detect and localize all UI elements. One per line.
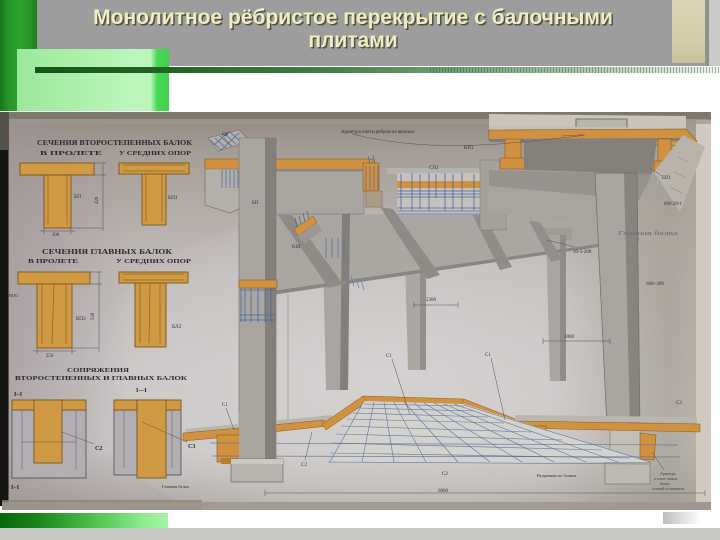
svg-text:С3: С3 [676, 401, 682, 406]
svg-text:200: 200 [52, 233, 60, 238]
svg-text:У СРЕДНИХ ОПОР: У СРЕДНИХ ОПОР [119, 150, 191, 157]
svg-text:СЕЧЕНИЯ ГЛАВНЫХ БАЛОК: СЕЧЕНИЯ ГЛАВНЫХ БАЛОК [42, 249, 172, 256]
svg-text:ВТОРОСТЕПЕННЫХ И ГЛАВНЫХ БАЛОК: ВТОРОСТЕПЕННЫХ И ГЛАВНЫХ БАЛОК [15, 375, 187, 382]
svg-text:БП1: БП1 [168, 195, 178, 201]
svg-text:СП2: СП2 [429, 166, 439, 171]
svg-text:СЕЧЕНИЯ ВТОРОСТЕПЕННЫХ БАЛОК: СЕЧЕНИЯ ВТОРОСТЕПЕННЫХ БАЛОК [37, 140, 192, 147]
svg-text:250: 250 [46, 354, 54, 359]
svg-text:С1: С1 [222, 403, 228, 408]
svg-text:520: 520 [91, 312, 96, 320]
svg-text:С1: С1 [386, 354, 392, 359]
svg-text:Вторичные по балкам: Вторичные по балкам [537, 473, 576, 478]
svg-text:I⌐I: I⌐I [14, 392, 23, 398]
svg-text:В ПРОЛЕТЕ: В ПРОЛЕТЕ [28, 258, 79, 265]
svg-text:600+400: 600+400 [646, 282, 664, 287]
svg-text:балок: балок [660, 482, 669, 486]
svg-text:БП2: БП2 [76, 316, 86, 322]
svg-text:I—I: I—I [136, 388, 147, 394]
svg-text:С2: С2 [442, 472, 448, 477]
svg-text:С2: С2 [95, 446, 102, 452]
svg-text:КР: КР [222, 133, 228, 138]
svg-text:В ПРОЛЕТЕ: В ПРОЛЕТЕ [40, 150, 103, 157]
svg-text:3000: 3000 [564, 335, 575, 340]
svg-text:БП: БП [74, 194, 81, 200]
svg-text:БП1: БП1 [662, 176, 671, 181]
svg-text:Главная балка: Главная балка [618, 230, 679, 237]
svg-text:КП1: КП1 [464, 146, 474, 151]
svg-text:420: 420 [95, 196, 100, 204]
svg-text:2300: 2300 [426, 298, 437, 303]
svg-text:БЛ2: БЛ2 [172, 324, 182, 330]
svg-text:С2: С2 [301, 463, 307, 468]
svg-text:600:28-1: 600:28-1 [664, 202, 683, 207]
svg-text:СОПРЯЖЕНИЯ: СОПРЯЖЕНИЯ [67, 367, 129, 374]
svg-text:ВПО: ВПО [9, 293, 19, 298]
svg-text:в плите чиных: в плите чиных [654, 477, 678, 481]
svg-text:головей по вязаным: головей по вязаным [652, 487, 685, 491]
svg-text:С1: С1 [485, 353, 491, 358]
svg-text:30-3-200: 30-3-200 [573, 250, 592, 255]
svg-text:КШ: КШ [292, 245, 300, 250]
svg-text:Главная балка: Главная балка [162, 484, 189, 489]
svg-text:I⌐I: I⌐I [11, 485, 20, 491]
svg-text:С3: С3 [188, 444, 195, 450]
svg-text:БП: БП [252, 201, 259, 206]
svg-text:Арматура: Арматура [660, 472, 676, 476]
svg-text:У СРЕДНИХ ОПОР: У СРЕДНИХ ОПОР [116, 258, 191, 265]
